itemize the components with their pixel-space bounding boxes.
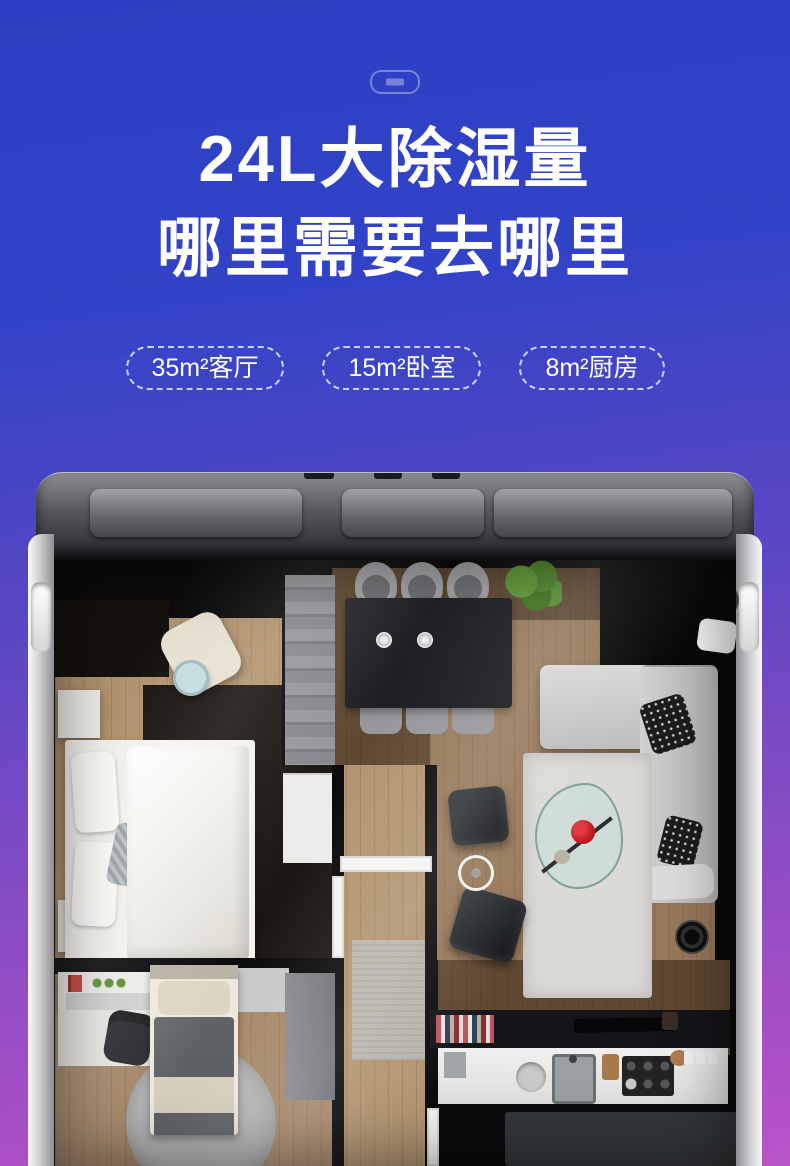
badge-bedroom: 15m²卧室 bbox=[322, 346, 481, 390]
headline-line-1: 24L大除湿量 bbox=[0, 114, 790, 203]
side-table bbox=[173, 660, 209, 696]
panel-notch bbox=[374, 473, 402, 479]
bed-foot bbox=[154, 1113, 234, 1135]
plate bbox=[376, 632, 392, 648]
nightstand bbox=[58, 690, 100, 738]
handle-recess-right bbox=[739, 582, 759, 652]
handle-recess-left bbox=[31, 582, 51, 652]
kitchen-counter bbox=[438, 1048, 728, 1104]
kitchen-mat bbox=[505, 1112, 736, 1166]
bed-blanket bbox=[154, 1077, 234, 1117]
decor-pebble bbox=[554, 850, 570, 864]
office-chair bbox=[102, 1008, 156, 1067]
sofa-arm-cushion bbox=[645, 863, 715, 901]
bed-headboard bbox=[150, 965, 238, 979]
faucet bbox=[569, 1055, 577, 1063]
ring-lamp-center bbox=[471, 868, 481, 878]
double-bed bbox=[65, 740, 255, 965]
bed-pillow bbox=[70, 751, 119, 834]
mixing-basin bbox=[516, 1062, 546, 1092]
desk-plants bbox=[92, 978, 126, 988]
closet-cabinet bbox=[282, 575, 335, 765]
white-dresser bbox=[283, 773, 337, 863]
gas-hob bbox=[622, 1056, 674, 1096]
runner-rug bbox=[352, 940, 426, 1060]
counter-appliance bbox=[444, 1052, 466, 1078]
switch-plates bbox=[684, 1052, 718, 1064]
promo-banner: 24L大除湿量 哪里需要去哪里 35m²客厅 15m²卧室 8m²厨房 bbox=[0, 0, 790, 1166]
panel-segment bbox=[494, 489, 732, 537]
potted-plant bbox=[504, 560, 562, 614]
cutting-board bbox=[602, 1054, 619, 1080]
headline-line-2: 哪里需要去哪里 bbox=[0, 203, 790, 292]
bed-duvet bbox=[154, 1017, 234, 1083]
bedside-unit bbox=[233, 968, 289, 1012]
doorway bbox=[427, 1108, 439, 1166]
side-rail-left bbox=[28, 534, 54, 1166]
coffee-maker bbox=[662, 1012, 678, 1030]
wall bbox=[332, 765, 344, 1166]
doorway bbox=[340, 856, 432, 872]
panel-notch bbox=[432, 473, 460, 479]
tall-cabinet bbox=[285, 973, 335, 1100]
red-flowers bbox=[571, 820, 595, 844]
panel-segment bbox=[342, 489, 484, 537]
single-bed bbox=[150, 965, 238, 1135]
dining-table bbox=[345, 598, 512, 708]
plate bbox=[417, 632, 433, 648]
leather-pouf bbox=[447, 785, 510, 847]
doorway bbox=[332, 876, 344, 958]
bedroom-wardrobe bbox=[55, 600, 169, 677]
floor-speaker bbox=[675, 920, 709, 954]
books-row bbox=[436, 1015, 494, 1043]
sofa-white-cushion bbox=[696, 618, 736, 655]
apartment-floorplan bbox=[54, 560, 736, 1166]
kitchen-sink bbox=[552, 1054, 596, 1104]
ring-lamp bbox=[458, 855, 494, 891]
panel-notch bbox=[304, 473, 334, 479]
room-size-badges: 35m²客厅 15m²卧室 8m²厨房 bbox=[0, 346, 790, 390]
floorplan-image bbox=[28, 470, 762, 1166]
bed-pillow bbox=[158, 981, 230, 1015]
device-top-panel bbox=[36, 472, 754, 561]
badge-living-room: 35m²客厅 bbox=[126, 346, 285, 390]
wall bbox=[425, 765, 437, 1166]
power-outlet-indicator-icon bbox=[370, 70, 420, 94]
badge-kitchen: 8m²厨房 bbox=[519, 346, 664, 390]
panel-segment bbox=[90, 489, 302, 537]
red-book bbox=[68, 975, 82, 992]
kitchen-shelf bbox=[430, 1010, 730, 1048]
bed-duvet bbox=[127, 746, 249, 960]
shelf-tray bbox=[574, 1017, 674, 1033]
outlet-slot bbox=[386, 79, 404, 86]
headline: 24L大除湿量 哪里需要去哪里 bbox=[0, 114, 790, 292]
side-rail-right bbox=[736, 534, 762, 1166]
